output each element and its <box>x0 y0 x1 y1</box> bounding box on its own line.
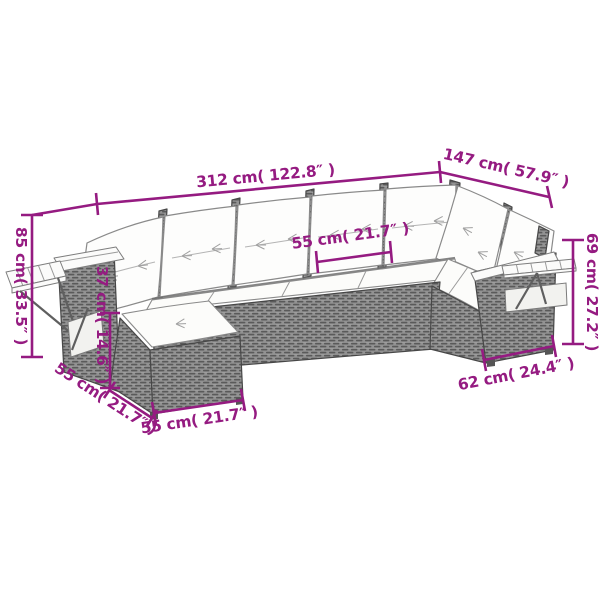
dimension-backrest-height-label: 69 cm( 27.2″ ) <box>583 233 600 351</box>
dimension-overall-height-label: 85 cm( 33.5″ ) <box>12 227 30 345</box>
product-dimension-diagram: 312 cm( 122.8″ ) 147 cm( 57.9″ ) 85 cm( … <box>0 0 600 600</box>
sofa-diagram-svg: 312 cm( 122.8″ ) 147 cm( 57.9″ ) 85 cm( … <box>0 0 600 600</box>
dimension-seat-height-label: 37 cm( 14.6″ ) <box>93 266 111 384</box>
